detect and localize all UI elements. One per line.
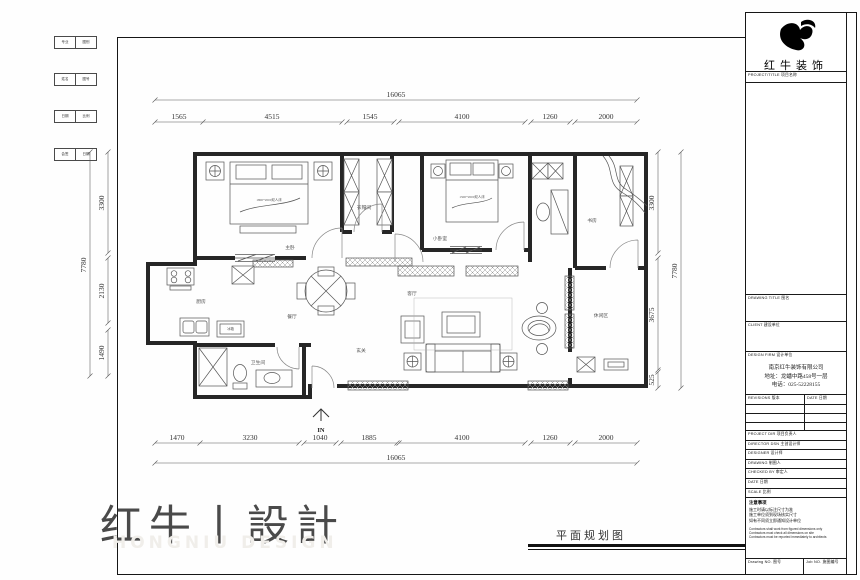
project-title-label: PROJECT/TITLE 项目名称 [746, 72, 846, 79]
revisions-label: REVISIONS 版本 [746, 395, 782, 402]
revision-strip-row: 姓名 图号 [55, 73, 97, 86]
revisions-date-label: DATE 日期 [805, 395, 829, 402]
drawing-title-row: DRAWING TITLE 图名 [746, 294, 846, 321]
drawing-title-label: DRAWING TITLE 图名 [746, 295, 846, 302]
revision-strip-cell: 比例 [75, 110, 97, 123]
revision-strip-row: 日期 比例 [55, 110, 97, 123]
company-address: 地址：龙蟠中路458号一层 [746, 373, 846, 382]
scale-row: SCALE 比例 [746, 488, 846, 498]
director-row: DIRECTOR DSN 主创设计师 [746, 440, 846, 450]
notes-line: 如有不同须立即通知设计单位 [749, 518, 843, 524]
notes-block: 注意事项 施工时请以标注尺寸为准 施工单位须到现场核实尺寸 如有不同须立即通知设… [746, 497, 846, 558]
revision-strip-cell: 日期 [75, 148, 97, 161]
revision-strip-cell: 图别 [75, 36, 97, 49]
brand-logotype-en: HONGNIU DESIGN [112, 533, 338, 553]
design-firm-label: DESIGN FIRM 设计单位 [746, 352, 846, 359]
drawing-name-rule-thick [528, 544, 745, 547]
drawing-sheet: 专业 图别 姓名 图号 日期 比例 会签 日期 红牛装饰 PROJECT/TIT… [0, 0, 860, 580]
drawing-name-rule-thin [528, 549, 745, 550]
company-logo [746, 15, 846, 57]
designer-row: DESIGNER 设计师 [746, 449, 846, 459]
revision-strip-cell: 日期 [54, 110, 76, 123]
dim-left-2: 1490 [97, 345, 106, 360]
client-label: CLIENT 建设单位 [746, 322, 846, 329]
revision-strip-row: 专业 图别 [55, 36, 97, 49]
notes-title: 注意事项 [749, 500, 843, 506]
project-dir-row: PROJECT DIR 项目负责人 [746, 430, 846, 440]
checked-row: CHECKED BY 审定人 [746, 468, 846, 478]
client-row: CLIENT 建设单位 [746, 321, 846, 351]
revision-strip-cell: 专业 [54, 36, 76, 49]
title-block-margin-line [846, 13, 847, 574]
design-firm-row: DESIGN FIRM 设计单位 南京红牛装饰有限公司 地址：龙蟠中路458号一… [746, 351, 846, 394]
dim-left-total: 7780 [79, 257, 88, 272]
drawing-row: DRAWING 制图人 [746, 459, 846, 469]
date-row: DATE 日期 [746, 478, 846, 488]
drawing-name: 平面规划图 [556, 527, 626, 543]
job-no-label: Job NO. 施图编号 [804, 559, 846, 566]
revision-strip-cell: 姓名 [54, 73, 76, 86]
drawing-number-row: Drawing NO. 图号 Job NO. 施图编号 [746, 558, 846, 574]
revision-strip-cell: 图号 [75, 73, 97, 86]
project-title-row: PROJECT/TITLE 项目名称 [746, 71, 846, 83]
title-block: 红牛装饰 PROJECT/TITLE 项目名称 DRAWING TITLE 图名… [745, 12, 857, 575]
revision-strip-cell: 会签 [54, 148, 76, 161]
dim-left-0: 3300 [97, 195, 106, 210]
bull-logo-icon [774, 18, 818, 54]
notes-line-en: Contractors must be reported immediately… [749, 535, 843, 539]
drawing-no-label: Drawing NO. 图号 [746, 559, 803, 566]
revisions-table: REVISIONS 版本 DATE 日期 [746, 394, 846, 430]
company-phone: 电话：025-52228155 [746, 381, 846, 390]
company-line: 南京红牛装饰有限公司 [746, 364, 846, 373]
dim-left-1: 2130 [97, 283, 106, 298]
revision-strip-row: 会签 日期 [55, 148, 97, 161]
